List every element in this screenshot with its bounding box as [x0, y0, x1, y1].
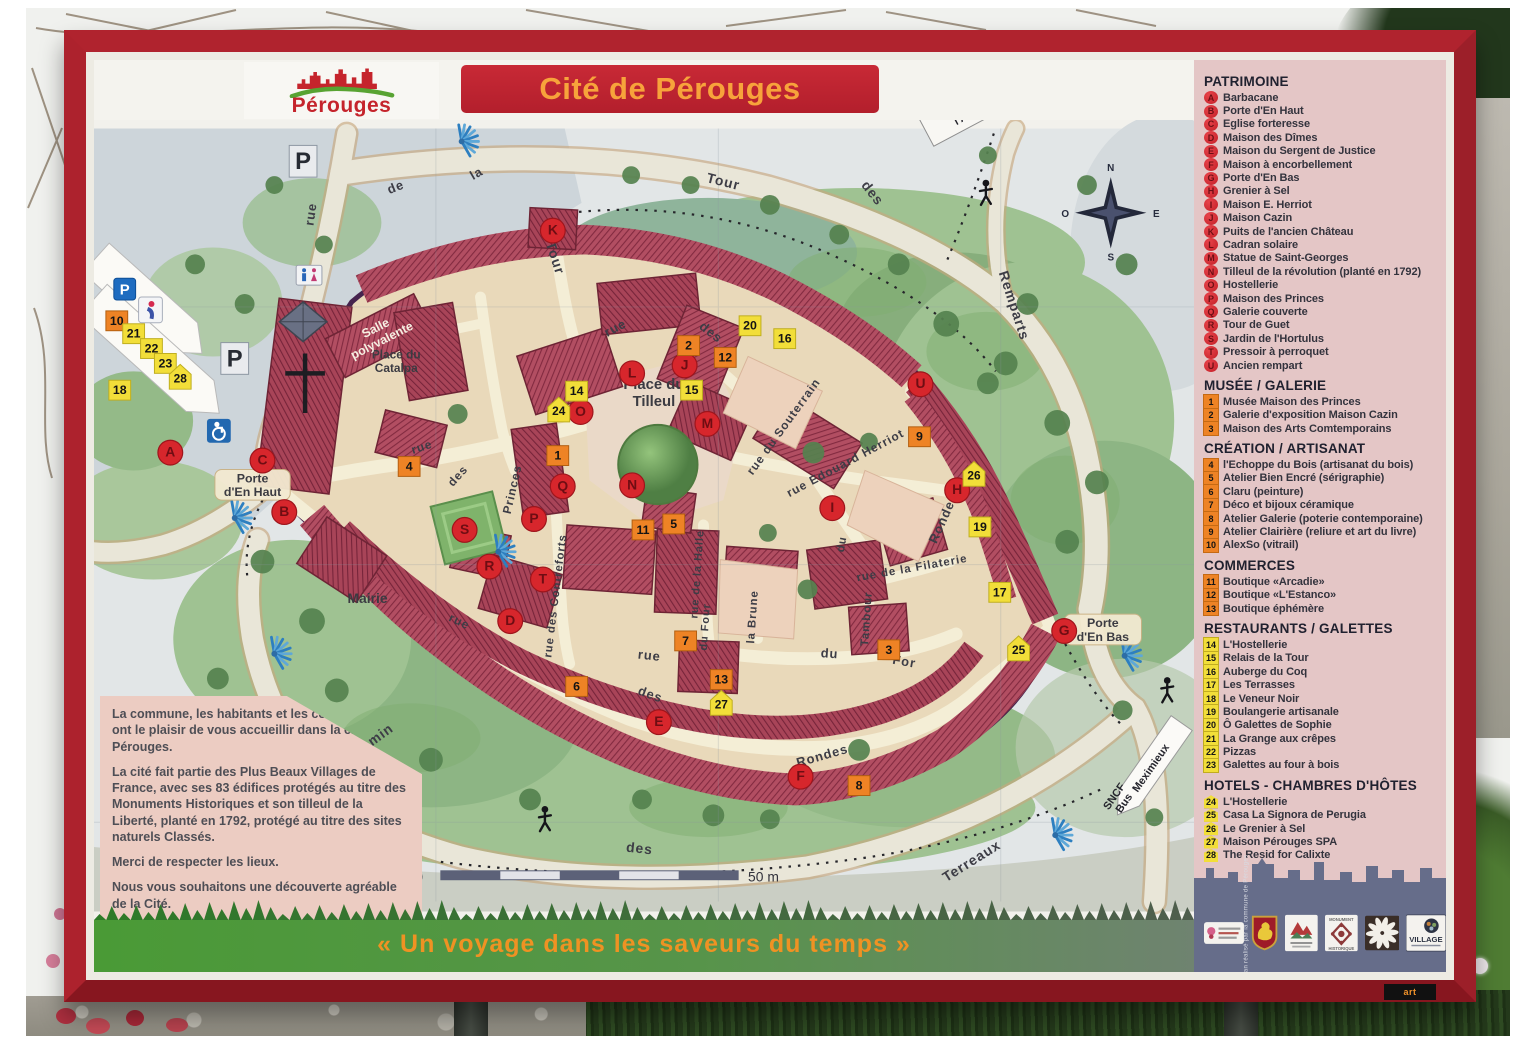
- legend-item: PMaison des Princes: [1204, 292, 1440, 305]
- map-marker-G: G: [1052, 619, 1077, 644]
- place-label: Place duCatalpa: [372, 347, 421, 374]
- legend-section-title: RESTAURANTS / GALETTES: [1204, 621, 1440, 636]
- legend-badge: 14: [1204, 638, 1218, 651]
- svg-text:A: A: [165, 444, 175, 460]
- legend-badge: P: [1204, 292, 1218, 305]
- legend-label: Atelier Clairière (reliure et art du liv…: [1223, 526, 1416, 538]
- map-marker-R: R: [477, 554, 502, 579]
- svg-text:G: G: [1059, 622, 1070, 638]
- map-marker-I: I: [820, 496, 845, 521]
- legend-item: 19Boulangerie artisanale: [1204, 705, 1440, 718]
- legend-label: Porte d'En Bas: [1223, 172, 1299, 184]
- legend-item: 11Boutique «Arcadie»: [1204, 575, 1440, 588]
- legend-label: Musée Maison des Princes: [1223, 396, 1361, 408]
- legend-label: Ô Galettes de Sophie: [1223, 719, 1332, 731]
- photo-frame: Pérouges Cité de Pérouges: [26, 8, 1510, 1036]
- legend-label: L'Hostellerie: [1223, 639, 1287, 651]
- legend-item: 3Maison des Arts Comtemporains: [1204, 422, 1440, 435]
- legend-badge: C: [1204, 118, 1218, 131]
- legend-item: 25Casa La Signora de Perugia: [1204, 809, 1440, 822]
- legend-section-title: HOTELS - CHAMBRES D'HÔTES: [1204, 778, 1440, 793]
- legend-badge: 23: [1204, 759, 1218, 772]
- legend-label: AlexSo (vitrail): [1223, 539, 1298, 551]
- svg-text:24: 24: [552, 404, 566, 418]
- legend-section-title: CRÉATION / ARTISANAT: [1204, 441, 1440, 456]
- handicap-icon: [207, 419, 231, 443]
- legend-item: EMaison du Sergent de Justice: [1204, 145, 1440, 158]
- svg-text:7: 7: [682, 634, 689, 648]
- legend-label: Cadran solaire: [1223, 239, 1298, 251]
- svg-text:14: 14: [570, 384, 584, 398]
- legend-badge: 21: [1204, 732, 1218, 745]
- legend-badge: 25: [1204, 809, 1218, 822]
- blason-perouges-logo: [1251, 913, 1278, 953]
- legend-badge: 9: [1204, 526, 1218, 539]
- legend-item: 20Ô Galettes de Sophie: [1204, 719, 1440, 732]
- svg-text:25: 25: [1012, 643, 1026, 657]
- legend-badge: O: [1204, 279, 1218, 292]
- legend-badge: J: [1204, 212, 1218, 225]
- legend-badge: D: [1204, 131, 1218, 144]
- legend-badge: 18: [1204, 692, 1218, 705]
- legend-label: Eglise forteresse: [1223, 118, 1310, 130]
- legend-badge: T: [1204, 346, 1218, 359]
- legend-item: 13Boutique éphémère: [1204, 602, 1440, 615]
- svg-text:N: N: [627, 476, 637, 492]
- legend-label: Le Grenier à Sel: [1223, 823, 1305, 835]
- map-marker-2: 2: [678, 336, 700, 356]
- map-marker-6: 6: [566, 677, 588, 697]
- svg-text:T: T: [539, 570, 548, 586]
- rosace-logo: [1365, 914, 1400, 952]
- legend-label: Boulangerie artisanale: [1223, 706, 1339, 718]
- svg-text:K: K: [548, 222, 558, 238]
- legend-item: GPorte d'En Bas: [1204, 171, 1440, 184]
- legend-badge: 17: [1204, 679, 1218, 692]
- svg-text:S: S: [1107, 252, 1114, 263]
- map-marker-E: E: [646, 710, 671, 735]
- map-marker-T: T: [531, 567, 556, 592]
- legend-label: Boutique «L'Estanco»: [1223, 589, 1336, 601]
- legend-badge: U: [1204, 359, 1218, 372]
- legend-item: 26Le Grenier à Sel: [1204, 822, 1440, 835]
- legend-item: DMaison des Dîmes: [1204, 131, 1440, 144]
- legend-badge: 3: [1204, 422, 1218, 435]
- legend-badge: 12: [1204, 589, 1218, 602]
- street-label: rue: [302, 202, 320, 227]
- legend-footer: Illustration · Plan réalisé par la commu…: [1194, 854, 1446, 972]
- map-marker-9: 9: [909, 427, 931, 447]
- map-marker-A: A: [158, 440, 183, 465]
- svg-text:J: J: [681, 356, 689, 372]
- credits-text: Illustration · Plan réalisé par la commu…: [1243, 855, 1249, 972]
- legend-item: 14L'Hostellerie: [1204, 638, 1440, 651]
- legend-item: 6Claru (peinture): [1204, 485, 1440, 498]
- legend-item: IMaison E. Herriot: [1204, 198, 1440, 211]
- legend-item: HGrenier à Sel: [1204, 185, 1440, 198]
- legend-label: Statue de Saint-Georges: [1223, 252, 1348, 264]
- map-marker-Q: Q: [550, 474, 575, 499]
- parking-big-icon: P: [289, 145, 317, 177]
- map-marker-U: U: [908, 372, 933, 397]
- legend-label: Atelier Bien Encré (sérigraphie): [1223, 472, 1384, 484]
- map-marker-7: 7: [675, 631, 697, 651]
- legend-badge: 15: [1204, 652, 1218, 665]
- legend-item: TPressoir à perroquet: [1204, 345, 1440, 358]
- legend-badge: 19: [1204, 705, 1218, 718]
- legend-item: 15Relais de la Tour: [1204, 652, 1440, 665]
- perouges-logo: Pérouges: [244, 62, 439, 119]
- legend-item: 9Atelier Clairière (reliure et art du li…: [1204, 525, 1440, 538]
- legend-badge: M: [1204, 252, 1218, 265]
- legend-label: Hostellerie: [1223, 279, 1278, 291]
- legend-item: 10AlexSo (vitrail): [1204, 539, 1440, 552]
- legend-badge: A: [1204, 91, 1218, 104]
- legend-badge: F: [1204, 158, 1218, 171]
- logo-wordmark: Pérouges: [292, 94, 392, 118]
- svg-text:26: 26: [967, 468, 981, 482]
- legend-section-title: PATRIMOINE: [1204, 74, 1440, 89]
- village-label: VILLAGE: [1409, 935, 1442, 944]
- legend-label: Boutique «Arcadie»: [1223, 576, 1325, 588]
- legend-item: BPorte d'En Haut: [1204, 104, 1440, 117]
- legend-item: 2Galerie d'exposition Maison Cazin: [1204, 409, 1440, 422]
- svg-text:P: P: [227, 345, 243, 372]
- legend-item: 8Atelier Galerie (poterie contemporaine): [1204, 512, 1440, 525]
- legend-item: 5Atelier Bien Encré (sérigraphie): [1204, 472, 1440, 485]
- map-marker-1: 1: [547, 446, 569, 466]
- legend-label: Casa La Signora de Perugia: [1223, 809, 1366, 821]
- legend-badge: K: [1204, 225, 1218, 238]
- legend-badge: 6: [1204, 485, 1218, 498]
- legend-item: 21La Grange aux crêpes: [1204, 732, 1440, 745]
- svg-text:S: S: [460, 521, 469, 537]
- map-marker-14: 14: [566, 381, 588, 401]
- street-label: du: [820, 645, 839, 661]
- svg-text:15: 15: [685, 383, 699, 397]
- legend-label: Maison du Sergent de Justice: [1223, 145, 1375, 157]
- legend-label: Auberge du Coq: [1223, 666, 1307, 678]
- sign-post-right: [1224, 996, 1258, 1036]
- map-marker-P: P: [522, 507, 547, 532]
- legend-label: Puits de l'ancien Château: [1223, 226, 1353, 238]
- map-marker-18: 18: [109, 380, 131, 400]
- map-marker-4: 4: [398, 457, 420, 477]
- info-icon: [139, 297, 163, 323]
- map-marker-11: 11: [632, 520, 654, 540]
- legend-badge: 2: [1204, 409, 1218, 422]
- legend-item: 4l'Echoppe du Bois (artisanat du bois): [1204, 458, 1440, 471]
- legend-item: CEglise forteresse: [1204, 118, 1440, 131]
- legend-item: KPuits de l'ancien Château: [1204, 225, 1440, 238]
- svg-text:U: U: [915, 375, 925, 391]
- legend-label: L'Hostellerie: [1223, 796, 1287, 808]
- legend-label: Boutique éphémère: [1223, 603, 1324, 615]
- map-marker-19: 19: [969, 517, 991, 537]
- tagline-text: « Un voyage dans les saveurs du temps »: [94, 930, 1194, 959]
- printer-badge: art: [1384, 984, 1436, 1000]
- legend-label: Galettes au four à bois: [1223, 759, 1339, 771]
- legend-badge: Q: [1204, 305, 1218, 318]
- svg-text:18: 18: [113, 383, 127, 397]
- sign-title: Cité de Pérouges: [539, 71, 800, 107]
- svg-text:12: 12: [718, 350, 732, 364]
- svg-text:10: 10: [110, 314, 124, 328]
- legend-item: MStatue de Saint-Georges: [1204, 252, 1440, 265]
- map-marker-L: L: [620, 361, 645, 386]
- svg-text:N: N: [1107, 163, 1114, 174]
- legend-label: Atelier Galerie (poterie contemporaine): [1223, 513, 1423, 525]
- legend-label: Relais de la Tour: [1223, 652, 1309, 664]
- legend-badge: R: [1204, 319, 1218, 332]
- legend-item: NTilleul de la révolution (planté en 179…: [1204, 265, 1440, 278]
- grass-silhouette: [94, 898, 1194, 920]
- svg-text:11: 11: [636, 523, 649, 537]
- legend-badge: 27: [1204, 836, 1218, 849]
- legend-label: Maison Pérouges SPA: [1223, 836, 1337, 848]
- legend-badge: 13: [1204, 602, 1218, 615]
- legend-item: 7Déco et bijoux céramique: [1204, 499, 1440, 512]
- legend-item: 27Maison Pérouges SPA: [1204, 835, 1440, 848]
- svg-text:17: 17: [993, 585, 1007, 599]
- legend-item: 17Les Terrasses: [1204, 678, 1440, 691]
- legend-item: 18Le Veneur Noir: [1204, 692, 1440, 705]
- mh-label-bottom: HISTORIQUE: [1328, 946, 1354, 951]
- legend-label: Jardin de l'Hortulus: [1223, 333, 1324, 345]
- map-marker-5: 5: [663, 514, 685, 534]
- legend-item: LCadran solaire: [1204, 238, 1440, 251]
- parking-big-icon: P: [221, 343, 249, 375]
- legend-badge: 22: [1204, 746, 1218, 759]
- printer-badge-label: art: [1403, 987, 1416, 997]
- legend-badge: S: [1204, 332, 1218, 345]
- plus-beaux-villages-logo: [1285, 913, 1318, 953]
- legend-label: Ancien rempart: [1223, 360, 1302, 372]
- map-marker-3: 3: [878, 640, 900, 660]
- legend-label: Tilleul de la révolution (planté en 1792…: [1223, 266, 1421, 278]
- legend-badge: L: [1204, 238, 1218, 251]
- legend-badge: 16: [1204, 665, 1218, 678]
- legend-badge: 11: [1204, 575, 1218, 588]
- svg-text:20: 20: [743, 319, 757, 333]
- legend-label: Barbacane: [1223, 92, 1278, 104]
- legend-item: FMaison à encorbellement: [1204, 158, 1440, 171]
- legend-badge: 20: [1204, 719, 1218, 732]
- svg-text:28: 28: [174, 371, 188, 385]
- legend-item: 22Pizzas: [1204, 745, 1440, 758]
- welcome-paragraph: Merci de respecter les lieux.: [112, 854, 408, 870]
- sign-board: Pérouges Cité de Pérouges: [64, 30, 1476, 1002]
- legend-sections: PATRIMOINEABarbacaneBPorte d'En HautCEgl…: [1204, 74, 1440, 862]
- map-marker-M: M: [695, 411, 720, 436]
- svg-text:P: P: [529, 510, 538, 526]
- wc-icon: [296, 265, 322, 285]
- legend-badge: 24: [1204, 795, 1218, 808]
- parking-blue-icon: P: [114, 278, 136, 300]
- legend-label: Pizzas: [1223, 746, 1256, 758]
- sign-header: Pérouges Cité de Pérouges: [94, 60, 1194, 120]
- legend-label: Maison des Princes: [1223, 293, 1324, 305]
- svg-text:6: 6: [573, 679, 580, 693]
- map-marker-N: N: [620, 473, 645, 498]
- legend-badge: 26: [1204, 822, 1218, 835]
- svg-text:19: 19: [973, 520, 987, 534]
- svg-text:8: 8: [856, 779, 863, 793]
- map-marker-S: S: [452, 518, 477, 543]
- legend-item: RTour de Guet: [1204, 319, 1440, 332]
- legend-badge: B: [1204, 105, 1218, 118]
- map-marker-12: 12: [714, 348, 736, 368]
- legend-label: Grenier à Sel: [1223, 185, 1290, 197]
- svg-text:F: F: [796, 768, 804, 784]
- map-marker-8: 8: [848, 776, 870, 796]
- legend-item: ABarbacane: [1204, 91, 1440, 104]
- scale-end: 50 m: [748, 869, 779, 885]
- legend-badge: N: [1204, 265, 1218, 278]
- map-marker-16: 16: [774, 329, 796, 349]
- sign-post-left: [454, 996, 488, 1036]
- map-marker-17: 17: [989, 582, 1011, 602]
- street-label: des: [625, 839, 653, 858]
- legend-badge: I: [1204, 198, 1218, 211]
- svg-text:21: 21: [127, 327, 141, 341]
- map-marker-B: B: [272, 500, 297, 525]
- legend-label: Tour de Guet: [1223, 319, 1289, 331]
- svg-text:D: D: [505, 612, 515, 628]
- svg-text:C: C: [257, 452, 267, 468]
- legend-item: 1Musée Maison des Princes: [1204, 395, 1440, 408]
- legend-label: Pressoir à perroquet: [1223, 346, 1329, 358]
- legend-label: Les Terrasses: [1223, 679, 1295, 691]
- legend-badge: 7: [1204, 499, 1218, 512]
- legend-item: OHostellerie: [1204, 278, 1440, 291]
- svg-text:O: O: [1061, 209, 1069, 220]
- legend-item: 24L'Hostellerie: [1204, 795, 1440, 808]
- map-marker-C: C: [250, 448, 275, 473]
- legend-item: 23Galettes au four à bois: [1204, 759, 1440, 772]
- legend-label: Galerie d'exposition Maison Cazin: [1223, 409, 1398, 421]
- svg-text:4: 4: [406, 459, 413, 473]
- legend-label: Maison des Dîmes: [1223, 132, 1317, 144]
- svg-text:13: 13: [714, 673, 728, 687]
- svg-text:3: 3: [885, 643, 892, 657]
- map-marker-O: O: [568, 400, 593, 425]
- legend-item: UAncien rempart: [1204, 359, 1440, 372]
- legend-label: Porte d'En Haut: [1223, 105, 1304, 117]
- tagline-band: « Un voyage dans les saveurs du temps »: [94, 920, 1194, 972]
- legend-label: Le Veneur Noir: [1223, 693, 1299, 705]
- svg-text:L: L: [628, 364, 637, 380]
- map-marker-15: 15: [681, 380, 703, 400]
- place-label: Mairie: [347, 590, 387, 606]
- welcome-paragraph: La cité fait partie des Plus Beaux Villa…: [112, 764, 408, 845]
- legend-badge: 4: [1204, 459, 1218, 472]
- legend-label: La Grange aux crêpes: [1223, 733, 1336, 745]
- map-marker-D: D: [498, 609, 523, 634]
- legend-label: l'Echoppe du Bois (artisanat du bois): [1223, 459, 1413, 471]
- svg-text:Q: Q: [557, 477, 568, 493]
- legend-item: SJardin de l'Hortulus: [1204, 332, 1440, 345]
- legend-badge: H: [1204, 185, 1218, 198]
- svg-text:M: M: [702, 415, 714, 431]
- village-skyline-silhouette: [1194, 854, 1446, 894]
- title-banner: Cité de Pérouges: [461, 65, 879, 113]
- legend-label: Maison des Arts Comtemporains: [1223, 423, 1391, 435]
- svg-text:R: R: [484, 558, 494, 574]
- svg-text:9: 9: [916, 430, 923, 444]
- svg-text:23: 23: [158, 356, 172, 370]
- svg-text:I: I: [830, 499, 834, 515]
- legend-badge: 5: [1204, 472, 1218, 485]
- legend-label: Maison Cazin: [1223, 212, 1292, 224]
- map-marker-K: K: [540, 218, 565, 243]
- monument-historique-logo: MONUMENT HISTORIQUE: [1325, 913, 1358, 953]
- svg-text:P: P: [295, 148, 311, 175]
- legend-panel: PATRIMOINEABarbacaneBPorte d'En HautCEgl…: [1194, 60, 1446, 972]
- svg-text:1: 1: [554, 449, 561, 463]
- legend-badge: 8: [1204, 512, 1218, 525]
- legend-item: 16Auberge du Coq: [1204, 665, 1440, 678]
- legend-label: Déco et bijoux céramique: [1223, 499, 1354, 511]
- legend-item: 12Boutique «L'Estanco»: [1204, 589, 1440, 602]
- partner-logos: Illustration · Plan réalisé par la commu…: [1194, 894, 1446, 972]
- map-marker-J: J: [672, 353, 697, 378]
- legend-badge: E: [1204, 145, 1218, 158]
- svg-text:5: 5: [670, 517, 677, 531]
- legend-badge: 1: [1204, 395, 1218, 408]
- mh-label-top: MONUMENT: [1329, 917, 1354, 922]
- fleur-label-logo: [1204, 921, 1244, 945]
- castle-logo-icon: [282, 64, 402, 98]
- legend-label: Maison E. Herriot: [1223, 199, 1312, 211]
- legend-badge: G: [1204, 172, 1218, 185]
- legend-label: Claru (peinture): [1223, 486, 1303, 498]
- legend-section-title: MUSÉE / GALERIE: [1204, 378, 1440, 393]
- svg-text:16: 16: [778, 332, 792, 346]
- map-marker-20: 20: [739, 316, 761, 336]
- svg-text:H: H: [952, 481, 962, 497]
- legend-label: Galerie couverte: [1223, 306, 1308, 318]
- legend-section-title: COMMERCES: [1204, 558, 1440, 573]
- map-panel: Pérouges Cité de Pérouges: [94, 60, 1194, 972]
- map-marker-13: 13: [710, 670, 732, 690]
- village-logo: VILLAGE: [1406, 913, 1446, 953]
- svg-text:27: 27: [715, 697, 729, 711]
- legend-badge: 10: [1204, 539, 1218, 552]
- legend-item: QGalerie couverte: [1204, 305, 1440, 318]
- street-label: rue: [637, 647, 661, 664]
- svg-text:E: E: [654, 713, 663, 729]
- svg-text:O: O: [575, 403, 586, 419]
- svg-text:2: 2: [685, 339, 692, 353]
- svg-text:B: B: [279, 503, 289, 519]
- legend-label: Maison à encorbellement: [1223, 159, 1352, 171]
- svg-text:E: E: [1153, 209, 1160, 220]
- legend-item: JMaison Cazin: [1204, 212, 1440, 225]
- map-marker-F: F: [788, 764, 813, 789]
- svg-text:P: P: [120, 283, 130, 299]
